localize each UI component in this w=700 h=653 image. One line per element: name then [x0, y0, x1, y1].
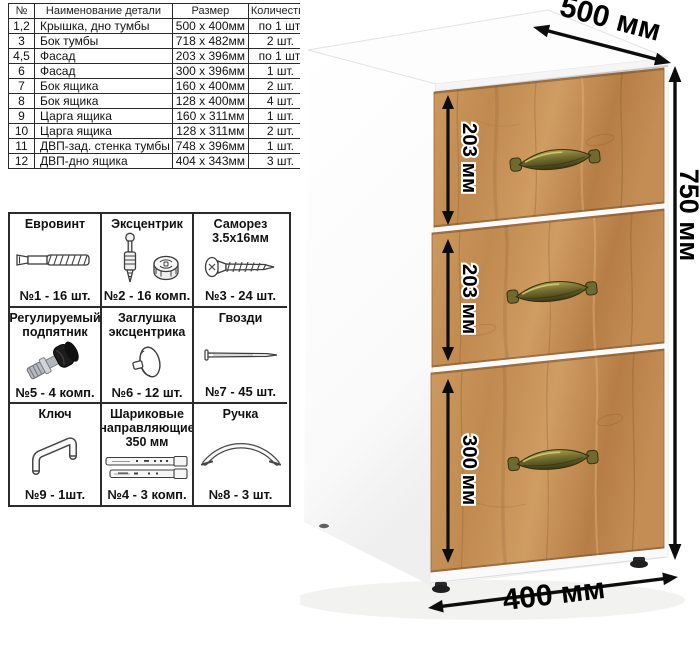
table-row: 10 Царга ящика 128 х 311мм 2 шт.	[9, 124, 313, 139]
handle-icon	[200, 421, 282, 487]
cabinet-foot	[319, 524, 329, 528]
table-row: 6 Фасад 300 х 396мм 1 шт.	[9, 64, 313, 79]
col-header-size: Размер	[172, 4, 248, 19]
euro-screw-icon	[13, 231, 97, 288]
hex-key-icon	[24, 421, 86, 487]
cabinet-figure: 500 мм 750 мм 400 мм 203 мм 203 мм	[300, 0, 700, 648]
cam-cover-icon	[122, 339, 172, 385]
table-row: 3 Бок тумбы 718 х 482мм 2 шт.	[9, 34, 313, 49]
parts-table: № Наименование детали Размер Количество …	[8, 3, 313, 169]
dimension-drawer-top-label: 203 мм	[458, 123, 481, 193]
hardware-item-gvozdi: Гвозди №7 - 45 шт.	[194, 308, 287, 404]
dimension-height-label: 750 мм	[674, 169, 700, 262]
hardware-item-excentrik: Эксцентрик	[102, 214, 194, 308]
table-row: 1,2 Крышка, дно тумбы 500 х 400мм по 1 ш…	[9, 19, 313, 34]
dimension-drawer-bottom-label: 300 мм	[458, 435, 481, 505]
col-header-name: Наименование детали	[35, 4, 173, 19]
hardware-item-ruchka: Ручка №8 - 3 шт.	[194, 404, 287, 505]
table-row: 8 Бок ящика 128 х 400мм 4 шт.	[9, 94, 313, 109]
table-row: 11 ДВП-зад. стенка тумбы 748 х 396мм 1 ш…	[9, 139, 313, 154]
assembly-instruction-page: { "parts_table": { "headers": ["№", "Наи…	[0, 0, 700, 648]
cabinet-side-panel	[304, 50, 436, 585]
hardware-item-zaglushka: Заглушка эксцентрика №6 - 12 шт.	[102, 308, 194, 404]
hardware-item-podpyatnik: Регулируемый подпятник №5 - 4 комп.	[10, 308, 102, 404]
table-row: 12 ДВП-дно ящика 404 х 343мм 3 шт.	[9, 154, 313, 169]
hardware-item-napravlyayushchie: Шариковые направляющие 350 мм	[102, 404, 194, 505]
hardware-item-klyuch: Ключ №9 - 1шт.	[10, 404, 102, 505]
cabinet-photo: 500 мм 750 мм 400 мм 203 мм 203 мм	[300, 0, 700, 648]
parts-table-header-row: № Наименование детали Размер Количество	[9, 4, 313, 19]
nail-icon	[201, 325, 281, 384]
dimension-drawer-middle-label: 203 мм	[458, 264, 481, 334]
col-header-num: №	[9, 4, 35, 19]
hardware-item-eurovint: Евровинт №1 - 16 шт.	[10, 214, 102, 308]
table-row: 4,5 Фасад 203 х 396мм по 1 шт.	[9, 49, 313, 64]
hardware-grid: Евровинт №1 - 16 шт. Эксцентрик	[8, 212, 291, 507]
ball-bearing-slides-icon	[104, 449, 190, 487]
adjustable-foot-icon	[24, 339, 86, 385]
table-row: 7 Бок ящика 160 х 400мм 2 шт.	[9, 79, 313, 94]
self-tapping-screw-icon	[202, 245, 280, 288]
table-row: 9 Царга ящика 160 х 311мм 1 шт.	[9, 109, 313, 124]
cam-lock-icon	[110, 231, 184, 288]
hardware-item-samorez: Саморез 3.5х16мм №3 - 24 шт.	[194, 214, 287, 308]
